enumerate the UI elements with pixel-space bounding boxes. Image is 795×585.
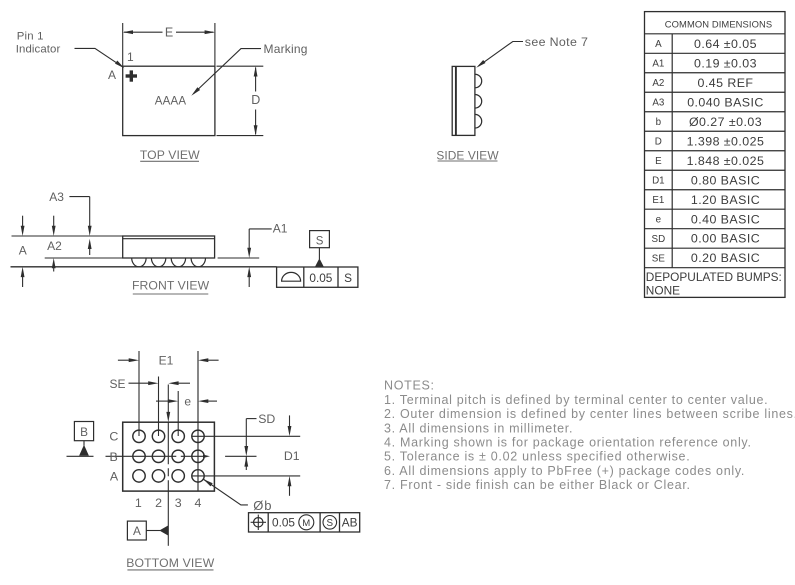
svg-text:SD: SD bbox=[652, 234, 666, 245]
svg-text:D1: D1 bbox=[652, 176, 665, 187]
svg-text:SD: SD bbox=[258, 412, 275, 426]
svg-text:6. All dimensions apply to PbF: 6. All dimensions apply to PbFree (+) pa… bbox=[384, 464, 745, 478]
svg-text:AB: AB bbox=[342, 516, 358, 530]
svg-text:DEPOPULATED BUMPS:: DEPOPULATED BUMPS: bbox=[646, 270, 782, 284]
svg-text:E: E bbox=[165, 25, 173, 39]
svg-text:A2: A2 bbox=[652, 78, 664, 89]
svg-text:0.19 ±0.03: 0.19 ±0.03 bbox=[694, 56, 757, 70]
svg-text:A: A bbox=[133, 524, 141, 538]
svg-text:SE: SE bbox=[109, 377, 125, 391]
svg-text:e: e bbox=[656, 215, 662, 226]
svg-text:SIDE VIEW: SIDE VIEW bbox=[436, 149, 499, 163]
svg-text:see Note 7: see Note 7 bbox=[525, 35, 588, 49]
svg-text:M: M bbox=[302, 518, 310, 529]
svg-text:3: 3 bbox=[175, 496, 182, 510]
svg-text:Ø0.27 ±0.03: Ø0.27 ±0.03 bbox=[689, 115, 762, 129]
svg-text:B: B bbox=[109, 450, 117, 464]
svg-text:Marking: Marking bbox=[264, 42, 308, 56]
svg-text:D1: D1 bbox=[284, 449, 300, 463]
svg-text:A1: A1 bbox=[652, 59, 664, 70]
svg-text:0.05: 0.05 bbox=[309, 271, 332, 285]
svg-text:D: D bbox=[655, 137, 662, 148]
svg-text:BOTTOM VIEW: BOTTOM VIEW bbox=[126, 556, 214, 570]
svg-text:2: 2 bbox=[155, 496, 162, 510]
svg-text:5. Tolerance is ± 0.02 unless: 5. Tolerance is ± 0.02 unless specified … bbox=[384, 450, 690, 464]
svg-text:AAAA: AAAA bbox=[155, 95, 187, 107]
svg-text:NOTES:: NOTES: bbox=[384, 379, 435, 393]
svg-text:A3: A3 bbox=[652, 98, 665, 109]
svg-text:A1: A1 bbox=[273, 222, 288, 236]
svg-text:1: 1 bbox=[135, 496, 142, 510]
svg-text:1.20 BASIC: 1.20 BASIC bbox=[691, 193, 760, 207]
svg-text:0.040 BASIC: 0.040 BASIC bbox=[687, 95, 764, 109]
svg-text:e: e bbox=[184, 394, 191, 408]
svg-text:1.398 ±0.025: 1.398 ±0.025 bbox=[687, 134, 765, 148]
svg-text:3. All dimensions in millimete: 3. All dimensions in millimeter. bbox=[384, 421, 573, 435]
svg-text:1: 1 bbox=[127, 50, 134, 64]
svg-text:A: A bbox=[110, 470, 119, 484]
svg-text:B: B bbox=[80, 425, 88, 439]
svg-text:A: A bbox=[19, 243, 27, 257]
svg-text:0.80 BASIC: 0.80 BASIC bbox=[691, 173, 760, 187]
svg-text:Indicator: Indicator bbox=[16, 44, 61, 56]
svg-text:Øb: Øb bbox=[253, 498, 272, 513]
svg-text:A3: A3 bbox=[49, 190, 64, 204]
svg-text:C: C bbox=[109, 430, 118, 444]
svg-text:0.45 REF: 0.45 REF bbox=[698, 76, 754, 90]
svg-text:0.64 ±0.05: 0.64 ±0.05 bbox=[694, 37, 757, 51]
svg-text:E1: E1 bbox=[652, 195, 664, 206]
svg-text:E: E bbox=[655, 156, 662, 167]
svg-text:A: A bbox=[655, 39, 662, 50]
svg-text:4: 4 bbox=[194, 496, 201, 510]
svg-text:S: S bbox=[344, 271, 352, 285]
svg-text:0.20 BASIC: 0.20 BASIC bbox=[691, 251, 760, 265]
svg-text:FRONT VIEW: FRONT VIEW bbox=[132, 279, 210, 293]
svg-text:1.848 ±0.025: 1.848 ±0.025 bbox=[687, 154, 765, 168]
svg-text:TOP VIEW: TOP VIEW bbox=[140, 148, 200, 162]
svg-text:S: S bbox=[316, 235, 324, 247]
svg-text:0.00 BASIC: 0.00 BASIC bbox=[691, 232, 760, 246]
svg-text:NONE: NONE bbox=[646, 283, 680, 297]
svg-text:A: A bbox=[108, 68, 116, 82]
svg-text:0.05: 0.05 bbox=[272, 516, 295, 530]
svg-text:E1: E1 bbox=[159, 353, 174, 367]
svg-text:A2: A2 bbox=[47, 239, 62, 253]
svg-text:7. Front - side finish can be: 7. Front - side finish can be either Bla… bbox=[384, 478, 691, 492]
svg-text:S: S bbox=[327, 518, 334, 529]
svg-text:Pin 1: Pin 1 bbox=[17, 31, 44, 43]
svg-text:D: D bbox=[251, 93, 260, 107]
svg-text:b: b bbox=[656, 117, 662, 128]
svg-text:2. Outer dimension is defined: 2. Outer dimension is defined by center … bbox=[384, 407, 795, 421]
svg-text:4. Marking shown is for packag: 4. Marking shown is for package orientat… bbox=[384, 436, 752, 450]
svg-text:1. Terminal pitch is defined b: 1. Terminal pitch is defined by terminal… bbox=[384, 393, 768, 407]
svg-text:SE: SE bbox=[652, 254, 666, 265]
svg-text:0.40 BASIC: 0.40 BASIC bbox=[691, 212, 760, 226]
svg-text:COMMON DIMENSIONS: COMMON DIMENSIONS bbox=[665, 19, 772, 30]
